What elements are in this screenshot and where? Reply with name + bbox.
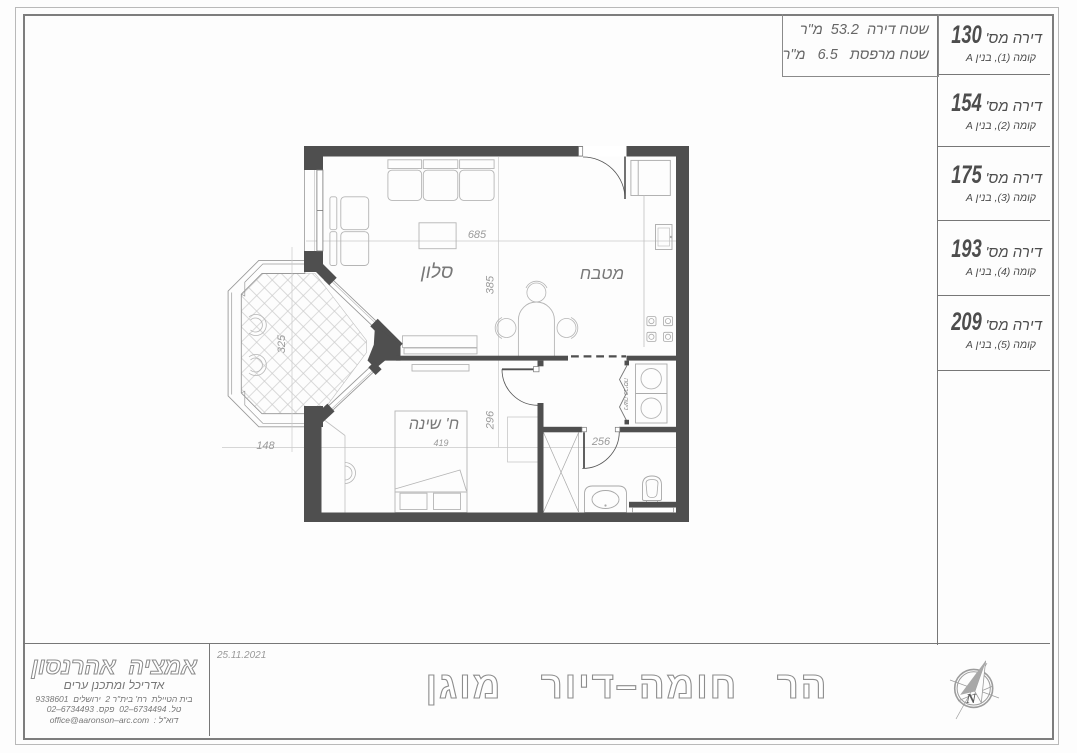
svg-text:מטבח: מטבח (580, 264, 624, 283)
svg-text:N: N (965, 692, 977, 707)
svg-text:נישה כביסה: נישה כביסה (622, 378, 629, 411)
svg-text:296: 296 (485, 410, 497, 430)
svg-text:148: 148 (256, 440, 275, 452)
svg-text:685: 685 (468, 229, 487, 241)
svg-text:325: 325 (276, 334, 288, 353)
svg-text:ח' שינה: ח' שינה (409, 416, 459, 433)
svg-text:419: 419 (433, 438, 448, 448)
svg-text:סלון: סלון (420, 262, 453, 283)
svg-text:385: 385 (485, 275, 497, 294)
svg-text:256: 256 (591, 436, 611, 448)
